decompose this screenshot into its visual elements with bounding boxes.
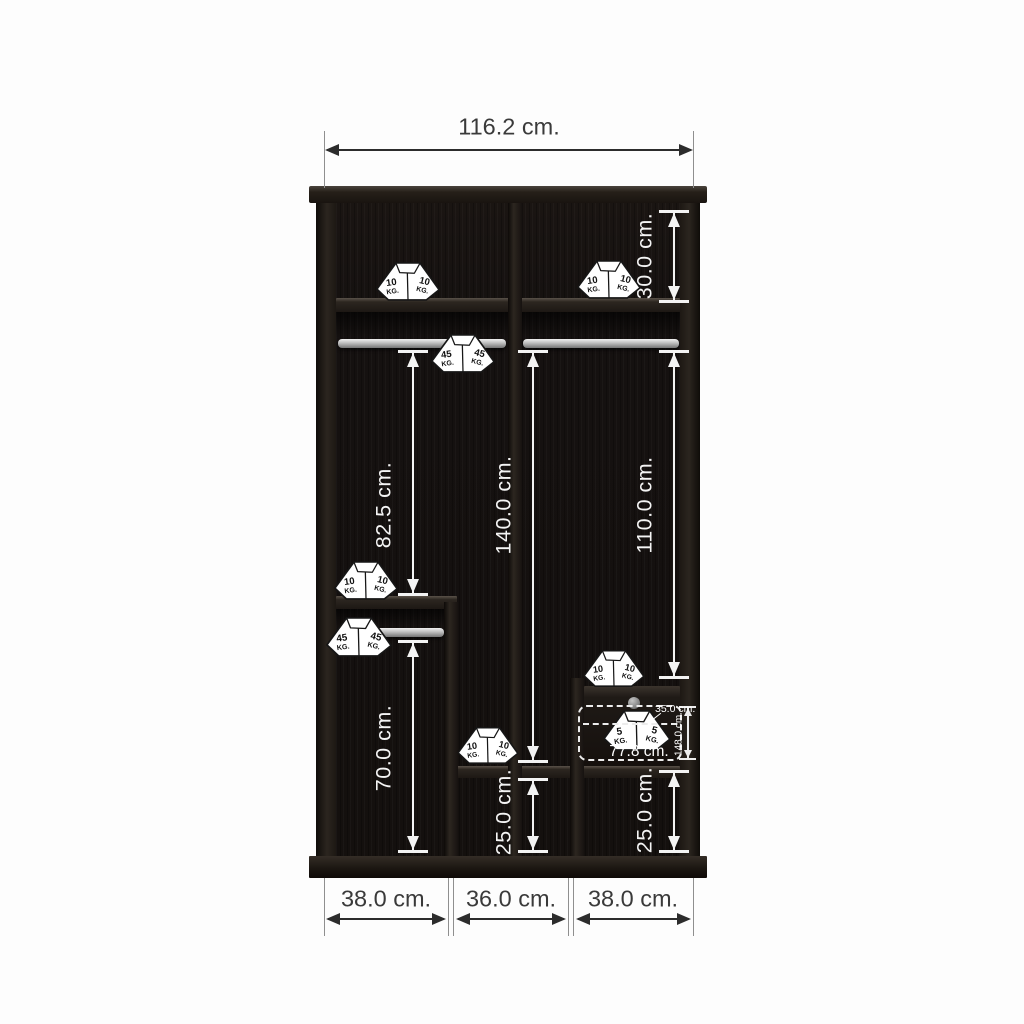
dimension-label-bottom-left-section: 38.0 cm.: [341, 886, 431, 913]
extension-line: [693, 131, 694, 188]
arrow-right-icon: [432, 913, 446, 925]
dimension-line: [412, 352, 414, 594]
weight-capacity-icon-top-shelf-left: 10 KG. 10 KG.: [375, 261, 441, 302]
arrow-up-icon: [527, 353, 539, 367]
dimension-label-middle-bottom-space: 25.0 cm.: [492, 769, 517, 855]
diagram-canvas: 35.0 cm. 148.0 cm. 77.8 cm. 116.2 cm.38.…: [0, 0, 1024, 1024]
arrow-left-icon: [576, 913, 590, 925]
drawer-height-dim-arrow-down: [684, 750, 692, 758]
extension-line: [453, 878, 454, 936]
drawer-dashed-inner-line: [583, 723, 677, 725]
dimension-right-rod-to-drawer: [657, 350, 691, 679]
cabinet-left-wall: [316, 203, 336, 856]
dimension-label-bottom-right-section: 38.0 cm.: [588, 886, 678, 913]
extension-line: [568, 878, 569, 936]
arrow-up-icon: [407, 643, 419, 657]
arrow-down-icon: [527, 836, 539, 850]
dimension-left-rod-to-shelf: [396, 350, 430, 596]
dimension-overall-width: [325, 143, 693, 157]
weight-capacity-icon-left-shelf: 10 KG. 10 KG.: [333, 560, 399, 601]
dimension-bottom-left-section: [326, 912, 446, 926]
extension-line: [324, 878, 325, 936]
svg-text:10: 10: [343, 576, 355, 588]
dimension-top-shelf-space: [657, 210, 691, 303]
dimension-center-rod-to-bottom-shelf: [516, 350, 550, 763]
dimension-label-right-bottom-space: 25.0 cm.: [633, 767, 658, 853]
dimension-middle-bottom-space: [516, 778, 550, 853]
dimension-bottom-right-section: [576, 912, 691, 926]
weight-capacity-icon-drawer-top: 10 KG. 10 KG.: [582, 649, 646, 688]
dimension-label-left-lower-space: 70.0 cm.: [372, 705, 397, 791]
arrow-down-icon: [527, 746, 539, 760]
dimension-label-bottom-middle-section: 36.0 cm.: [466, 886, 556, 913]
weight-capacity-icon-top-shelf-right: 10 KG. 10 KG.: [576, 259, 642, 300]
dimension-left-lower-space: [396, 640, 430, 853]
arrow-right-icon: [552, 913, 566, 925]
extension-line: [448, 878, 449, 936]
arrow-down-icon: [407, 836, 419, 850]
dimension-right-bottom-space: [657, 770, 691, 853]
dimension-line: [673, 352, 675, 677]
drawer-width-label: 77.8 cm.: [598, 743, 680, 761]
dimension-bottom-middle-section: [456, 912, 566, 926]
cabinet-top-panel: [309, 186, 707, 203]
dimension-line: [458, 918, 564, 920]
dimension-line: [327, 149, 691, 151]
weight-capacity-icon-middle-bottom-shelf: 10 KG. 10 KG.: [456, 726, 520, 765]
arrow-down-icon: [668, 662, 680, 676]
svg-text:10: 10: [586, 275, 598, 287]
dimension-label-center-rod-to-bottom-shelf: 140.0 cm.: [492, 456, 517, 555]
right-partition-panel: [570, 678, 584, 856]
dimension-line: [328, 918, 444, 920]
arrow-up-icon: [668, 353, 680, 367]
dimension-line: [532, 352, 534, 761]
svg-text:KG.: KG.: [336, 642, 350, 653]
arrow-down-icon: [668, 286, 680, 300]
arrow-up-icon: [668, 773, 680, 787]
svg-text:10: 10: [466, 741, 477, 752]
arrow-right-icon: [679, 144, 693, 156]
arrow-up-icon: [527, 781, 539, 795]
arrow-right-icon: [677, 913, 691, 925]
svg-text:10: 10: [385, 277, 397, 289]
arrow-left-icon: [326, 913, 340, 925]
extension-line: [693, 878, 694, 936]
extension-line: [324, 131, 325, 188]
arrow-down-icon: [668, 836, 680, 850]
arrow-left-icon: [325, 144, 339, 156]
dimension-label-right-rod-to-drawer: 110.0 cm.: [633, 456, 658, 553]
hanging-rod-right: [523, 339, 679, 348]
extension-line: [573, 878, 574, 936]
arrow-left-icon: [456, 913, 470, 925]
svg-text:10: 10: [592, 664, 603, 675]
dimension-label-left-rod-to-shelf: 82.5 cm.: [372, 462, 397, 548]
arrow-up-icon: [407, 353, 419, 367]
dimension-line: [578, 918, 689, 920]
weight-capacity-icon-top-rod: 45 KG. 45 KG.: [430, 333, 496, 374]
weight-capacity-icon-left-rod: 45 KG. 45 KG.: [325, 616, 393, 658]
cabinet-base-plinth: [309, 856, 707, 878]
drawer-height-dim-endbar-bottom: [679, 758, 696, 760]
dimension-label-overall-width: 116.2 cm.: [458, 114, 559, 141]
dimension-line: [412, 642, 414, 851]
arrow-down-icon: [407, 579, 419, 593]
arrow-up-icon: [668, 213, 680, 227]
